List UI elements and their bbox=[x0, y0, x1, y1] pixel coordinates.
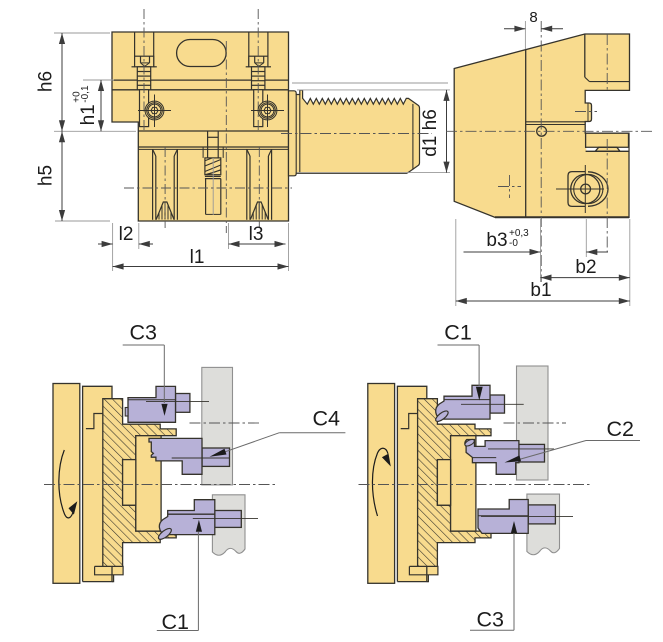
svg-text:d1 h6: d1 h6 bbox=[420, 109, 441, 157]
svg-text:C3: C3 bbox=[130, 321, 158, 345]
svg-text:-0,1: -0,1 bbox=[80, 85, 91, 103]
svg-text:C3: C3 bbox=[477, 608, 505, 632]
svg-text:C2: C2 bbox=[607, 417, 634, 441]
svg-text:8: 8 bbox=[529, 9, 537, 26]
svg-text:l2: l2 bbox=[119, 224, 134, 245]
svg-text:-0: -0 bbox=[509, 238, 518, 249]
svg-text:h1: h1 bbox=[78, 104, 99, 125]
svg-text:b3: b3 bbox=[486, 230, 507, 251]
svg-text:l3: l3 bbox=[249, 224, 264, 245]
svg-text:l1: l1 bbox=[190, 247, 205, 268]
svg-text:b2: b2 bbox=[575, 257, 596, 278]
svg-text:C1: C1 bbox=[444, 321, 471, 345]
svg-text:b1: b1 bbox=[530, 280, 551, 301]
svg-text:C4: C4 bbox=[313, 407, 341, 431]
svg-text:h6: h6 bbox=[36, 71, 57, 92]
svg-text:h5: h5 bbox=[36, 165, 57, 186]
